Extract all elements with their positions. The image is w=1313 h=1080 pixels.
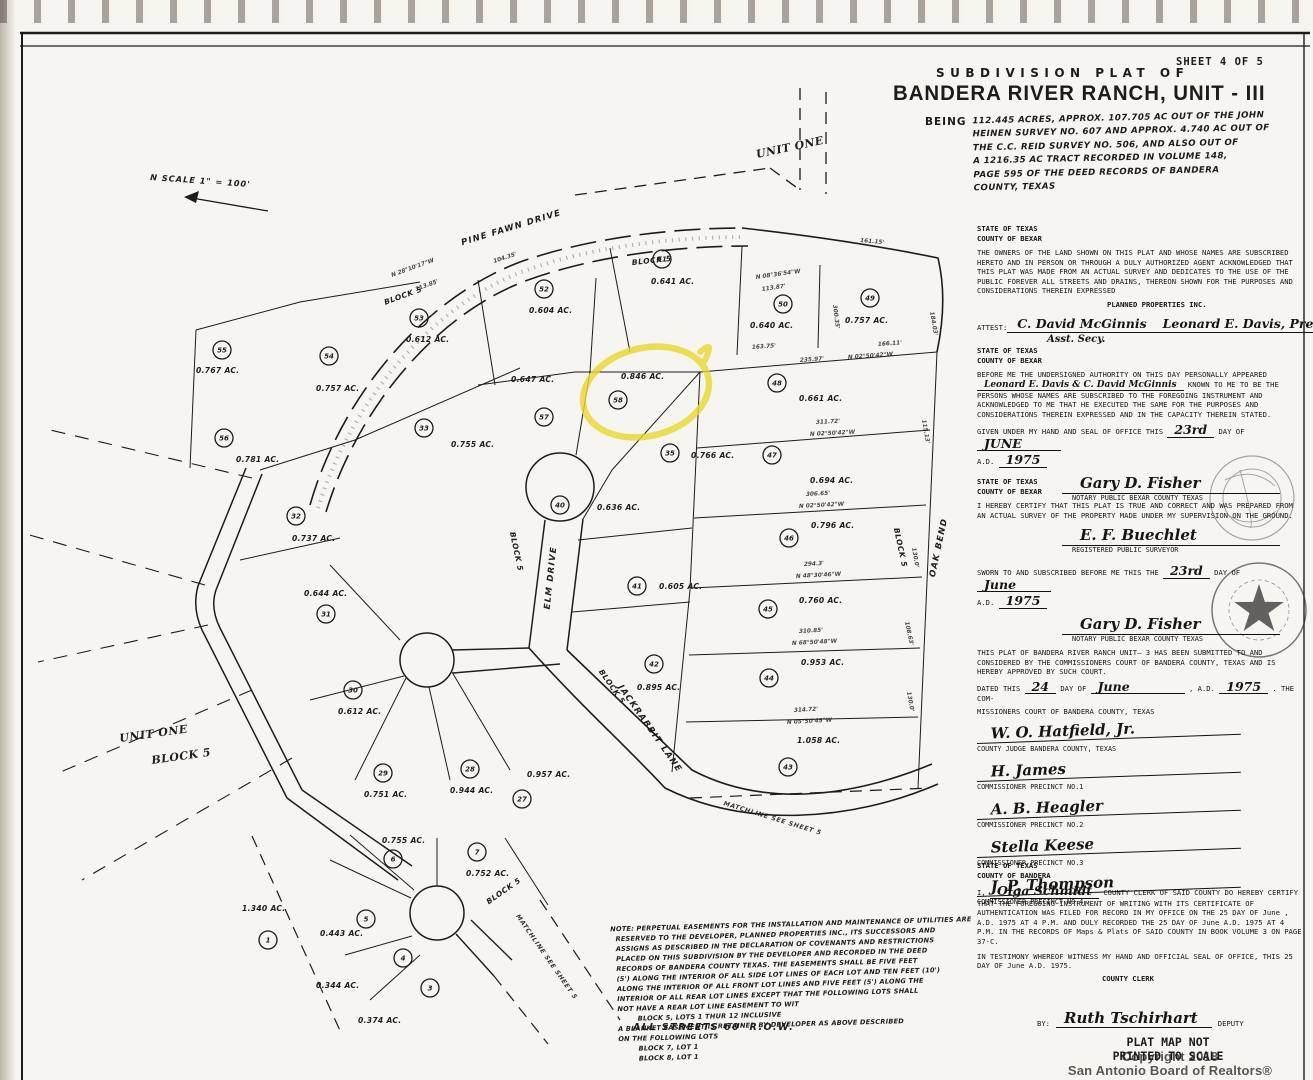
legal-column: STATE OF TEXAS COUNTY OF BEXAR THE OWNER… — [977, 224, 1305, 1064]
court-signature: Stella Keese — [990, 835, 1094, 857]
lot-number: 47 — [767, 452, 777, 460]
dimension-label: N 08°36'54"W — [755, 269, 801, 281]
sworn-label: SWORN TO AND SUBSCRIBED BEFORE ME THIS T… — [977, 568, 1159, 577]
lot-acreage: 0.374 AC. — [358, 1016, 401, 1025]
surveyor-heading: STATE OF TEXAS COUNTY OF BEXAR — [977, 477, 1305, 496]
lot-number: 32 — [291, 513, 301, 521]
court-line2: MISSIONERS COURT OF BANDERA COUNTY, TEXA… — [977, 707, 1305, 717]
attest-signature: C. David McGinnis — [1017, 316, 1146, 331]
tract-description: 112.445 ACRES, APPROX. 107.705 AC OUT OF… — [972, 109, 1294, 197]
lot-acreage: 0.752 AC. — [466, 869, 509, 878]
dimension-label: N 48°30'46"W — [796, 572, 842, 580]
dimension-label: 166.11' — [878, 340, 903, 348]
surveyor-body: I HEREBY CERTIFY THAT THIS PLAT IS TRUE … — [977, 501, 1305, 520]
appeared-names: Leonard E. Davis & C. David McGinnis — [977, 381, 1184, 391]
lot-acreage: 0.796 AC. — [811, 521, 854, 530]
easement-notes: NOTE: PERPETUAL EASEMENTS FOR THE INSTAL… — [610, 914, 994, 1065]
sworn-day: 23rd — [1163, 565, 1210, 579]
given-ad: A.D. — [977, 457, 994, 466]
notary2-signature: Gary D. Fisher — [1080, 615, 1200, 633]
surveyor-signature-label: REGISTERED PUBLIC SURVEYOR — [1072, 546, 1305, 555]
lot-acreage: 0.781 AC. — [236, 455, 279, 464]
page-title: BANDERA RIVER RANCH, UNIT - III — [893, 81, 1266, 106]
dimension-label: 108.63' — [903, 621, 914, 646]
clerk-testimony: IN TESTIMONY WHEREOF WITNESS MY HAND AND… — [977, 952, 1305, 971]
lot-acreage: 0.953 AC. — [801, 658, 844, 667]
lot-number: 55 — [217, 347, 227, 355]
surveyor-signature: E. F. Buechlet — [1080, 526, 1197, 544]
deputy-row: BY: Ruth Tschirhart DEPUTY — [1037, 1009, 1305, 1028]
lot-number: 46 — [784, 535, 794, 543]
lot-number: 35 — [665, 450, 675, 458]
block-label: BLOCK 5 — [508, 531, 525, 572]
dated-dayof: DAY OF — [1060, 684, 1086, 693]
lot-acreage: 0.612 AC. — [406, 335, 449, 344]
president-signature: Leonard E. Davis, Pres. — [1163, 316, 1313, 331]
matchline-label: MATCHLINE SEE SHEET 5 — [514, 913, 578, 1001]
lot-acreage: 0.751 AC. — [364, 790, 407, 799]
lot-acreage: 0.640 AC. — [750, 321, 793, 330]
north-scale-label: N SCALE 1" = 100' — [150, 172, 251, 189]
lot-acreage: 0.767 AC. — [196, 366, 239, 375]
dimension-label: 163.75' — [752, 343, 777, 351]
lot-number: 3 — [428, 985, 433, 993]
clerk-name-signature: Olga Schmidt — [990, 885, 1099, 899]
lot-number: 30 — [348, 687, 358, 695]
surveyor-certificate: STATE OF TEXAS COUNTY OF BEXAR I HEREBY … — [977, 477, 1305, 644]
lot-acreage: 0.641 AC. — [651, 277, 694, 286]
lot-acreage: 0.755 AC. — [451, 440, 494, 449]
dimension-label: 184.03' — [928, 311, 938, 336]
court-signature: A. B. Heagler — [990, 797, 1103, 819]
lot-number: 44 — [764, 675, 774, 683]
plat-sheet: 550.767 AC.540.757 AC.530.612 AC.520.604… — [0, 0, 1313, 1080]
lot-acreage: 0.605 AC. — [659, 582, 702, 591]
lot-acreage: 0.661 AC. — [799, 394, 842, 403]
owners-certificate: STATE OF TEXAS COUNTY OF BEXAR THE OWNER… — [977, 224, 1305, 345]
dimension-label: 130.0' — [910, 547, 919, 568]
lot-number: 6 — [391, 856, 396, 864]
lot-acreage: 0.443 AC. — [320, 929, 363, 938]
court-signature-label: COMMISSIONER PRECINCT NO.1 — [977, 783, 1305, 792]
lot-number: 28 — [465, 766, 475, 774]
lot-acreage: 0.644 AC. — [304, 589, 347, 598]
dimension-label: 300.35' — [831, 305, 840, 330]
deputy-signature: Ruth Tschirhart — [1056, 1009, 1212, 1028]
given-day: 23rd — [1167, 424, 1214, 438]
lot-number: 48 — [772, 380, 782, 388]
court-signature-row: H. JamesCOMMISSIONER PRECINCT NO.1 — [977, 763, 1305, 792]
dimension-label: 104.35' — [493, 252, 518, 265]
county-clerk-label: COUNTY CLERK — [1102, 974, 1305, 984]
lot-number: 7 — [475, 849, 480, 857]
sworn-year: 1975 — [999, 595, 1048, 609]
block-label: BLOCK 5 — [485, 876, 523, 906]
road-lower-stub — [456, 920, 512, 976]
road-left-boundary — [196, 468, 412, 880]
dimension-label: N 02°50'42"W — [848, 352, 894, 361]
dimension-label: 113.87' — [761, 284, 786, 293]
deputy-label: DEPUTY — [1218, 1019, 1244, 1029]
road-name-label: ELM DRIVE — [543, 546, 560, 610]
lot-number: 58 — [613, 397, 623, 405]
lot-acreage: 0.757 AC. — [845, 316, 888, 325]
cul-de-sac-lower — [410, 886, 464, 940]
north-arrow-line — [186, 197, 268, 211]
lot-acreage: 0.604 AC. — [529, 306, 572, 315]
plat-of-label: SUBDIVISION PLAT OF — [936, 66, 1189, 80]
dimension-label: 311.72' — [816, 419, 841, 426]
court-signature: H. James — [990, 760, 1066, 781]
lot-acreage: 0.647 AC. — [511, 375, 554, 384]
lot-number: 40 — [555, 502, 565, 510]
owners-body: THE OWNERS OF THE LAND SHOWN ON THIS PLA… — [977, 248, 1305, 296]
dimension-label: 235.97' — [800, 356, 825, 364]
lot-number: 42 — [649, 661, 659, 669]
given-month: JUNE — [977, 438, 1061, 452]
cul-de-sac-middle — [400, 633, 454, 687]
lot-acreage: 0.636 AC. — [597, 503, 640, 512]
dimension-label: 294.3' — [804, 561, 825, 568]
clerk-i: I, — [977, 888, 986, 897]
lot-number: 56 — [219, 435, 229, 443]
dimension-label: 310.85' — [799, 628, 824, 635]
lot-acreage: 0.846 AC. — [621, 372, 664, 381]
by-label: BY: — [1037, 1019, 1050, 1029]
lot-number: 5 — [364, 916, 369, 924]
dimension-label: 115.13' — [920, 419, 930, 444]
lot-number: 54 — [324, 353, 334, 361]
lot-number: 45 — [763, 606, 773, 614]
dimension-label: 314.72' — [794, 707, 819, 714]
sworn-dayof: DAY OF — [1214, 568, 1240, 577]
lot-number: 31 — [321, 611, 331, 619]
block-label: BLOCK 5 — [631, 254, 672, 267]
streets-row-note: ALL STREETS 60' R.O.W. — [633, 1022, 794, 1033]
road-name-label: PINE FAWN DRIVE — [460, 208, 563, 248]
clerk-certificate: STATE OF TEXAS COUNTY OF BANDERA I, Olga… — [977, 861, 1305, 1028]
lot-number: 52 — [539, 286, 549, 294]
lot-acreage: 0.895 AC. — [637, 683, 680, 692]
lot-acreage: 0.755 AC. — [382, 836, 425, 845]
clerk-heading: STATE OF TEXAS COUNTY OF BANDERA — [977, 861, 1305, 880]
cul-de-sac-upper — [526, 453, 594, 521]
court-signature-row: W. O. Hatfield, Jr.COUNTY JUDGE BANDERA … — [977, 725, 1305, 754]
dated-day: 24 — [1025, 681, 1056, 695]
dated-month: June — [1091, 681, 1185, 695]
notary1-body1: BEFORE ME THE UNDERSIGNED AUTHORITY ON T… — [977, 370, 1267, 379]
dashed-unit-boundary-rays — [26, 428, 292, 880]
unit-label: BLOCK 5 — [150, 746, 212, 767]
dated-year: 1975 — [1219, 681, 1268, 695]
dated-ad: , A.D. — [1189, 684, 1215, 693]
lot-acreage: 0.766 AC. — [691, 451, 734, 460]
sworn-month: June — [977, 579, 1051, 593]
company-name: PLANNED PROPERTIES INC. — [1107, 300, 1305, 310]
attest-row: ATTEST: C. David McGinnis Leonard E. Dav… — [977, 316, 1305, 333]
dated-label: DATED THIS — [977, 684, 1020, 693]
block-label: BLOCK 5 — [892, 527, 909, 568]
lot-number: 43 — [783, 764, 793, 772]
court-body: THIS PLAT OF BANDERA RIVER RANCH UNIT— 3… — [977, 648, 1305, 677]
lot-acreage: 0.760 AC. — [799, 596, 842, 605]
given-dayof: DAY OF — [1218, 427, 1244, 436]
owners-heading: STATE OF TEXAS COUNTY OF BEXAR — [977, 224, 1305, 243]
lot-number: 29 — [378, 770, 388, 778]
lot-number: 50 — [778, 301, 788, 309]
matchline-label: MATCHLINE SEE SHEET 5 — [723, 800, 823, 837]
given-year: 1975 — [999, 454, 1048, 468]
notary2-signature-label: NOTARY PUBLIC BEXAR COUNTY TEXAS — [1072, 635, 1305, 644]
lot-acreage: 0.757 AC. — [316, 384, 359, 393]
lot-acreage: 1.058 AC. — [797, 736, 840, 745]
sworn-ad: A.D. — [977, 598, 994, 607]
unit-label: UNIT ONE — [119, 723, 189, 745]
lot-number: 41 — [632, 583, 642, 591]
lot-acreage: 0.737 AC. — [292, 534, 335, 543]
lot-number: 27 — [517, 796, 527, 804]
lot-acreage: 0.957 AC. — [527, 770, 570, 779]
lot-acreage: 0.944 AC. — [450, 786, 493, 795]
court-signature-label: COUNTY JUDGE BANDERA COUNTY, TEXAS — [977, 745, 1305, 754]
not-to-scale-stamp: PLAT MAP NOT PRINTED TO SCALE — [1083, 1036, 1253, 1064]
notary1-heading: STATE OF TEXAS COUNTY OF BEXAR — [977, 346, 1305, 365]
scan-desk-edge — [0, 0, 1313, 23]
dimension-label: N 02°50'42"W — [799, 502, 845, 510]
asst-secy-label: Asst. Secy. — [1047, 334, 1305, 345]
lot-number: 57 — [539, 414, 549, 422]
road-connector — [452, 648, 560, 673]
dimension-label: N 05°50'45"W — [787, 718, 833, 726]
road-name-label: OAK BEND — [928, 517, 950, 578]
lot-acreage: 0.344 AC. — [316, 981, 359, 990]
unit-label: UNIT ONE — [755, 134, 825, 161]
lot-acreage: 0.694 AC. — [810, 476, 853, 485]
dimension-label: 306.65' — [806, 491, 831, 498]
attest-label: ATTEST: — [977, 323, 1007, 333]
lot-acreage: 1.340 AC. — [242, 904, 285, 913]
road-elm-drive — [529, 519, 583, 650]
lot-lines — [190, 246, 937, 1000]
being-label: BEING — [925, 116, 967, 128]
lot-number: 53 — [414, 315, 424, 323]
dimension-label: 130.0' — [905, 691, 914, 712]
court-signature-row: A. B. HeaglerCOMMISSIONER PRECINCT NO.2 — [977, 801, 1305, 830]
dimension-label: N 28°10'17"W — [391, 258, 436, 279]
block-label: BLOCK 5 — [383, 285, 424, 307]
court-signature: W. O. Hatfield, Jr. — [990, 720, 1135, 743]
lot-acreage: 0.612 AC. — [338, 707, 381, 716]
lot-number: 4 — [401, 955, 406, 963]
north-arrow-head — [184, 191, 199, 203]
dimension-label: N 68°50'48"W — [792, 639, 838, 647]
court-signature-label: COMMISSIONER PRECINCT NO.2 — [977, 821, 1305, 830]
lot-number: 49 — [865, 295, 875, 303]
lot-number: 33 — [419, 425, 429, 433]
lot-number: 1 — [266, 937, 271, 945]
